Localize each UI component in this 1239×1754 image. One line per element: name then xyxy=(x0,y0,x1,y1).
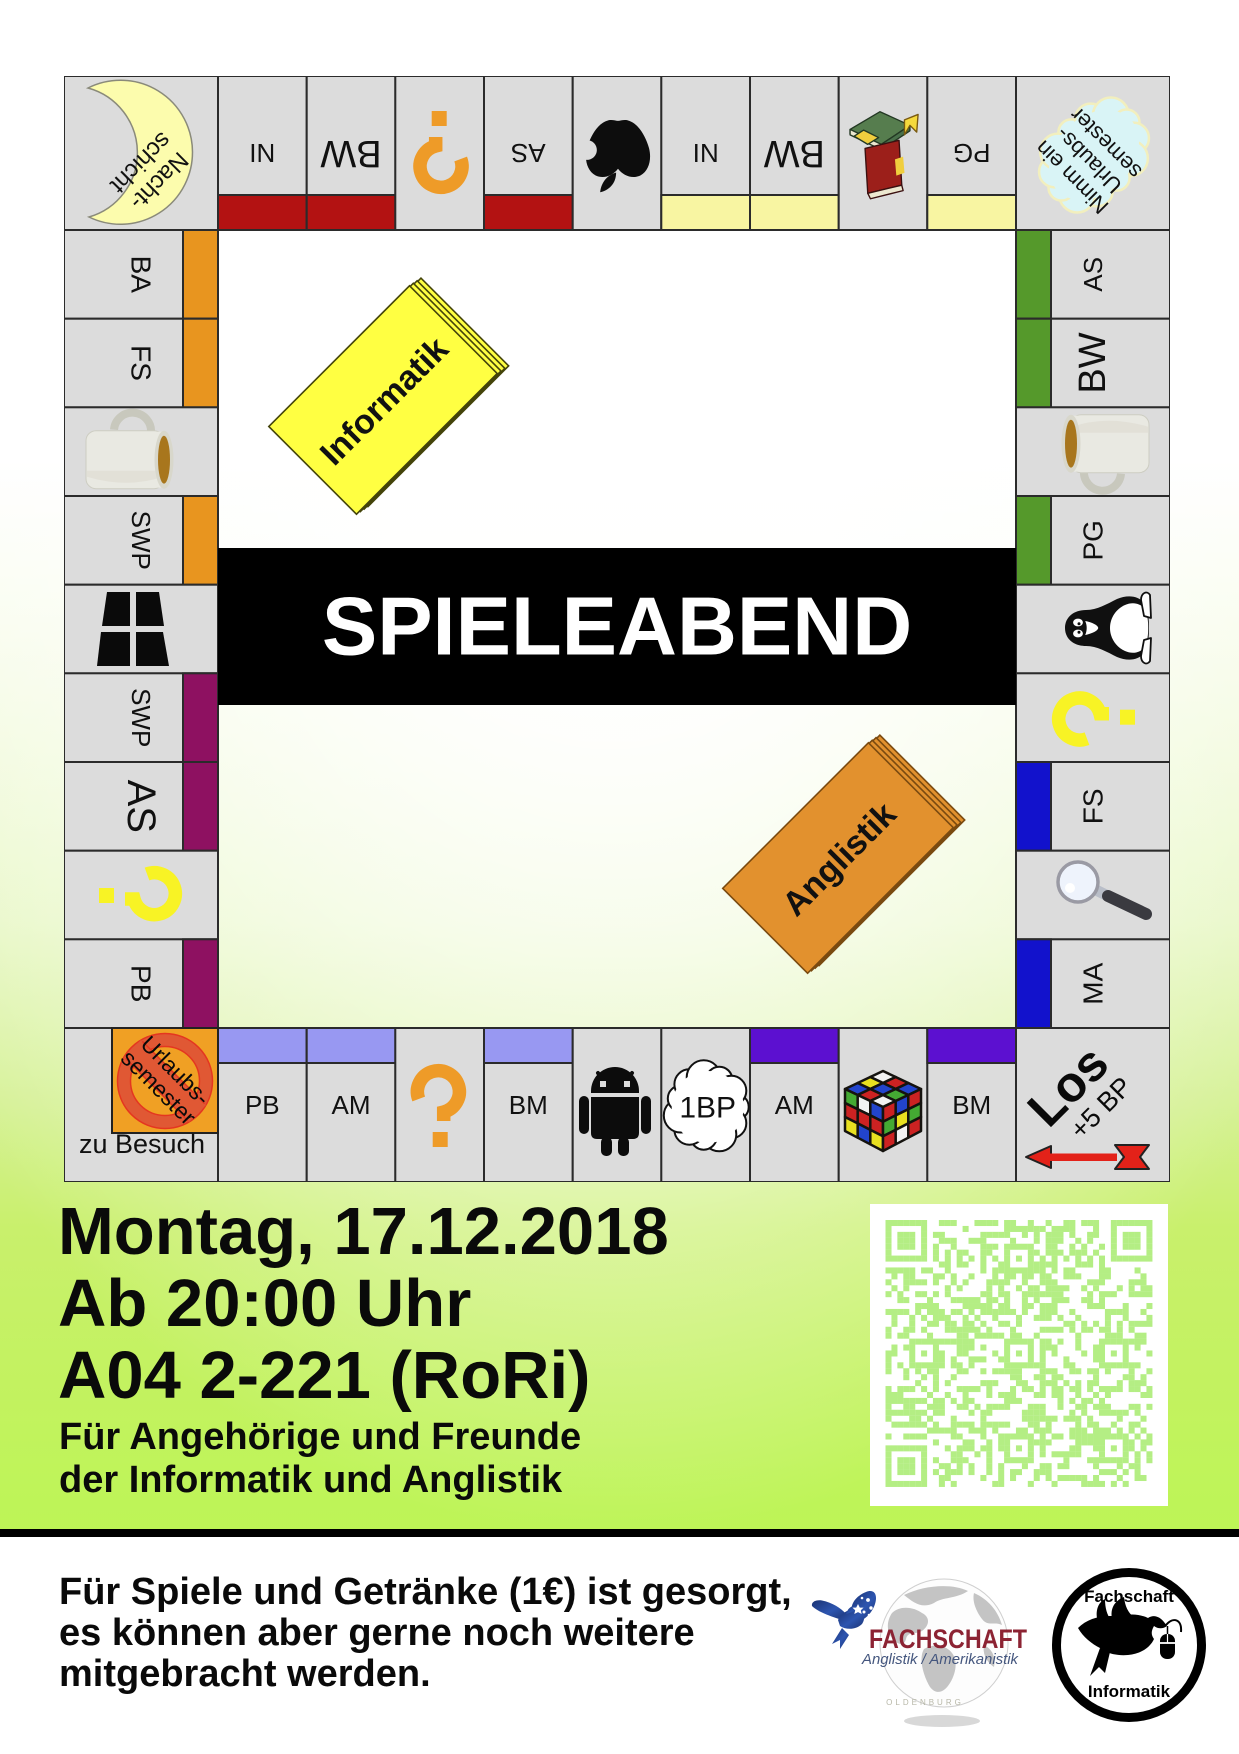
svg-text:NI: NI xyxy=(249,138,275,168)
svg-text:PB: PB xyxy=(245,1090,280,1120)
svg-text:FACHSCHAFT: FACHSCHAFT xyxy=(869,1624,1027,1654)
svg-text:AS: AS xyxy=(119,780,163,833)
svg-text:PG: PG xyxy=(953,138,991,168)
svg-text:SWP: SWP xyxy=(126,511,156,570)
svg-text:AM: AM xyxy=(775,1090,814,1120)
svg-text:Informatik: Informatik xyxy=(1088,1682,1171,1701)
svg-text:FS: FS xyxy=(126,345,157,381)
svg-text:BW: BW xyxy=(320,132,381,174)
svg-text:BA: BA xyxy=(126,256,157,294)
svg-text:zu Besuch: zu Besuch xyxy=(79,1129,205,1159)
svg-text:Anglistik / Amerikanistik: Anglistik / Amerikanistik xyxy=(861,1651,1019,1668)
svg-text:1BP: 1BP xyxy=(679,1092,736,1125)
svg-text:PB: PB xyxy=(126,965,157,1002)
svg-text:AS: AS xyxy=(511,138,546,168)
svg-text:NI: NI xyxy=(693,138,719,168)
svg-text:FS: FS xyxy=(1078,788,1109,824)
svg-text:SPIELEABEND: SPIELEABEND xyxy=(322,580,912,673)
svg-text:PG: PG xyxy=(1078,520,1109,560)
svg-text:BW: BW xyxy=(1072,332,1114,393)
svg-text:AS: AS xyxy=(1078,257,1108,292)
svg-text:Fachschaft: Fachschaft xyxy=(1084,1587,1174,1606)
svg-text:SWP: SWP xyxy=(126,688,156,747)
svg-text:BM: BM xyxy=(952,1090,991,1120)
svg-text:AM: AM xyxy=(332,1090,371,1120)
svg-text:MA: MA xyxy=(1078,962,1109,1004)
svg-text:BW: BW xyxy=(764,132,825,174)
svg-text:OLDENBURG: OLDENBURG xyxy=(886,1698,964,1707)
svg-text:BM: BM xyxy=(509,1090,548,1120)
